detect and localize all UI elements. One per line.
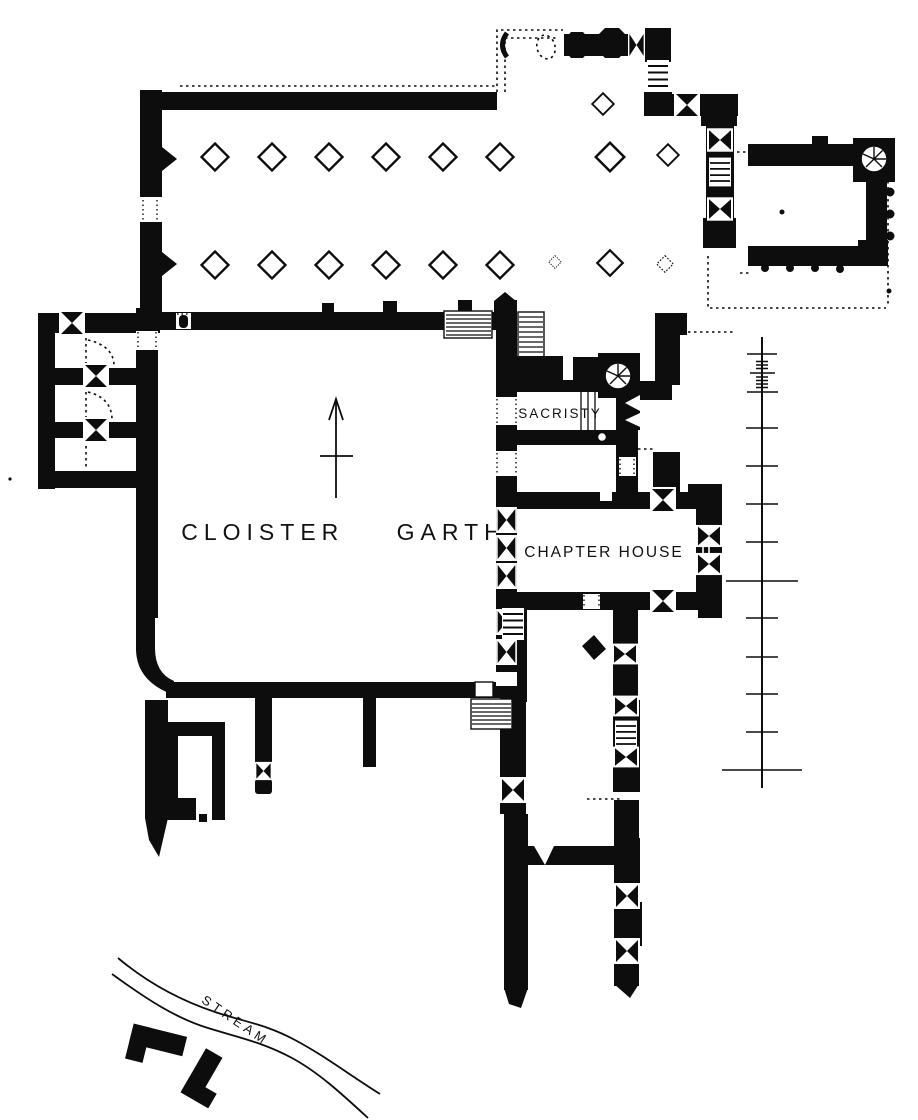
- abbey-ground-plan-page: SACRISTY CHAPTER HOUSE: [0, 0, 918, 1120]
- sacristy-label: SACRISTY: [518, 406, 602, 421]
- cloister-garth-label: CLOISTER GARTH: [181, 519, 507, 545]
- spiral-stair-icon: [861, 146, 887, 172]
- spiral-stair-icon: [605, 363, 631, 389]
- stray-mark-dot: [8, 477, 11, 480]
- chapter-house-label: CHAPTER HOUSE: [524, 544, 684, 561]
- survey-mark-dot: [887, 289, 892, 294]
- kitchen-room: [167, 722, 225, 822]
- abbey-plan-svg: SACRISTY CHAPTER HOUSE: [0, 0, 918, 1120]
